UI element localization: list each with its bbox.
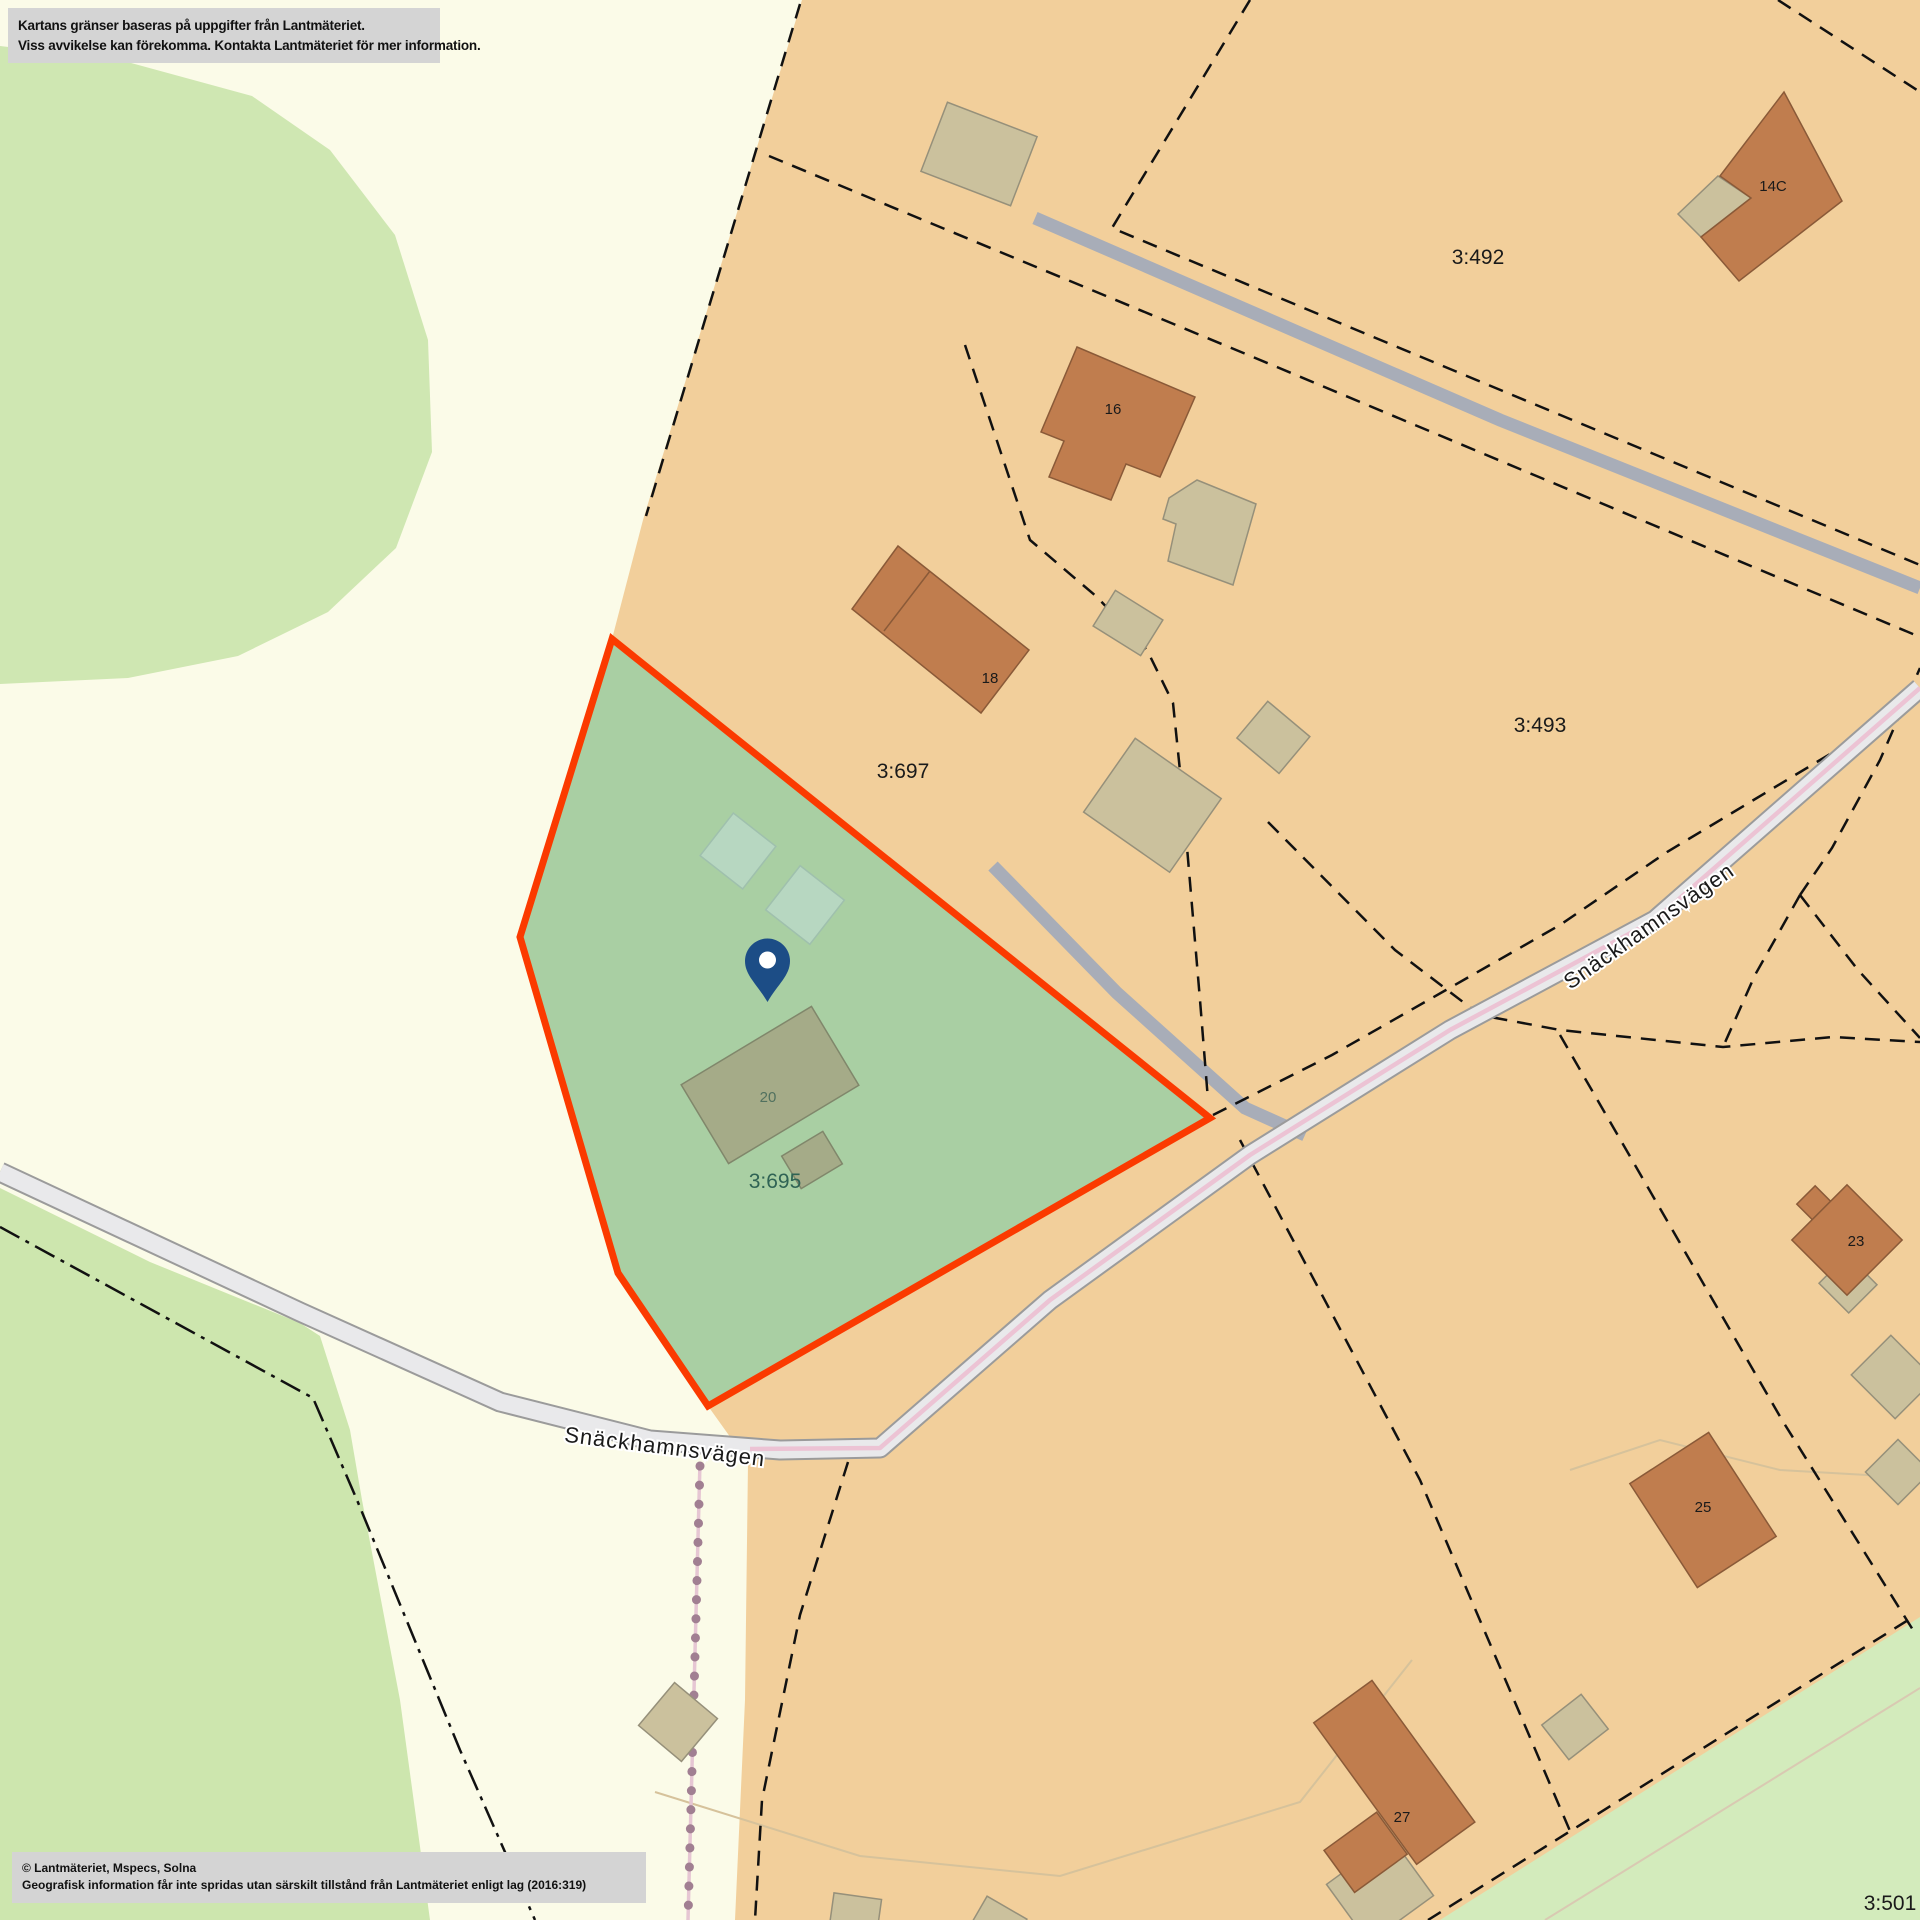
disclaimer-box: Kartans gränser baseras på uppgifter frå… bbox=[8, 8, 440, 63]
parcel-label-3695: 3:695 bbox=[749, 1170, 802, 1193]
parcel-label-3501: 3:501 bbox=[1864, 1892, 1917, 1915]
pin-hole bbox=[759, 952, 776, 969]
map-view[interactable]: 3:492 3:493 3:697 3:695 3:501 14C 16 18 … bbox=[0, 0, 1920, 1920]
house-number-27: 27 bbox=[1394, 1809, 1411, 1826]
house-number-25: 25 bbox=[1695, 1499, 1712, 1516]
attribution-line-2: Geografisk information får inte spridas … bbox=[22, 1877, 636, 1894]
parcel-label-3697: 3:697 bbox=[877, 760, 930, 783]
house-number-16: 16 bbox=[1105, 401, 1122, 418]
parcel-label-3492: 3:492 bbox=[1452, 246, 1505, 269]
house-number-23: 23 bbox=[1848, 1233, 1865, 1250]
disclaimer-line-2: Viss avvikelse kan förekomma. Kontakta L… bbox=[18, 36, 430, 56]
attribution-box: © Lantmäteriet, Mspecs, Solna Geografisk… bbox=[12, 1852, 646, 1903]
parcel-label-3493: 3:493 bbox=[1514, 714, 1567, 737]
house-number-20: 20 bbox=[760, 1089, 777, 1106]
house-number-18: 18 bbox=[982, 670, 999, 687]
house-number-14c: 14C bbox=[1759, 178, 1787, 195]
disclaimer-line-1: Kartans gränser baseras på uppgifter frå… bbox=[18, 16, 430, 36]
attribution-line-1: © Lantmäteriet, Mspecs, Solna bbox=[22, 1860, 636, 1877]
map-canvas: 3:492 3:493 3:697 3:695 3:501 14C 16 18 … bbox=[0, 0, 1920, 1920]
